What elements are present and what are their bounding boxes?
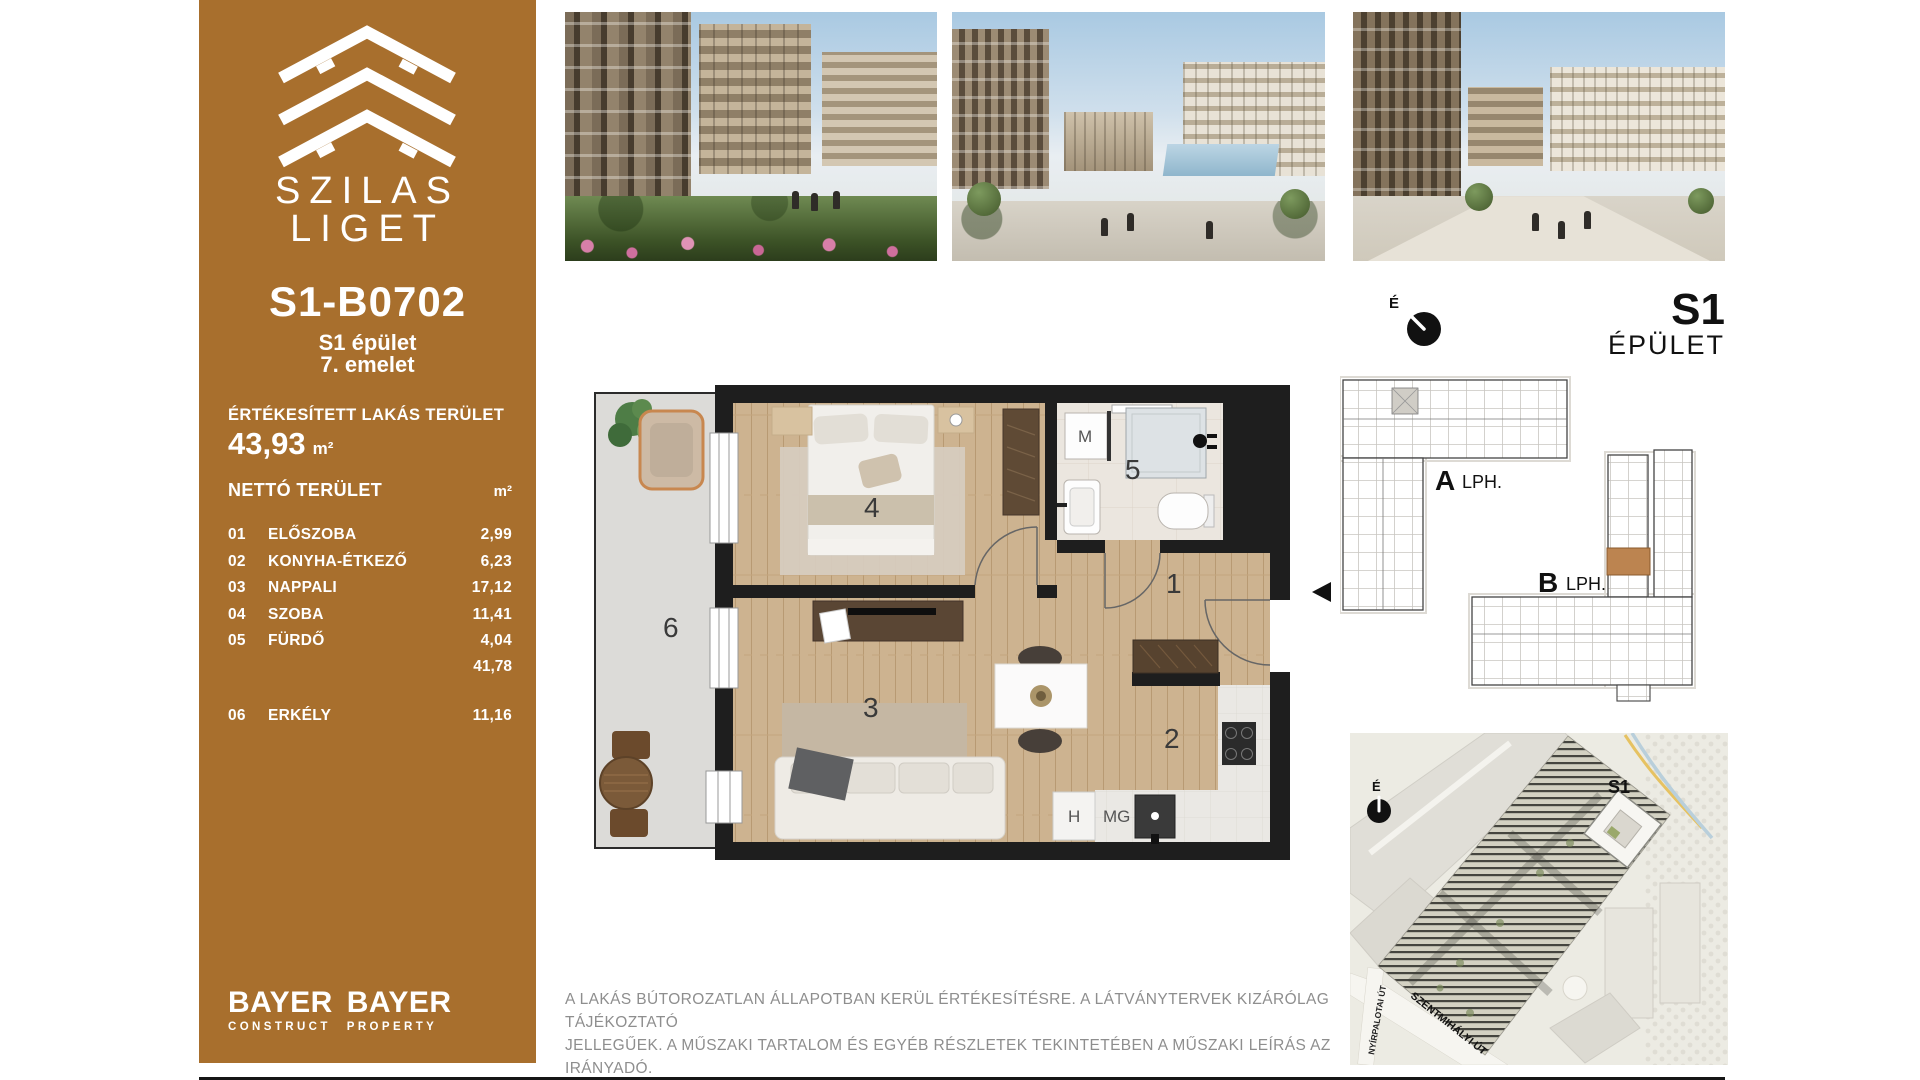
building-left [952,29,1049,188]
fridge-label: H [1068,807,1080,826]
washing-machine-label: M [1078,427,1092,446]
compass-north-label: É [1389,295,1399,312]
person-figure [1558,221,1565,239]
bayer-property-logo: BAYER PROPERTY [347,988,452,1033]
net-area-label: NETTÓ TERÜLET [228,480,382,501]
toilet [1158,493,1214,529]
room-number-bathroom: 5 [1125,454,1141,485]
room-name: ELŐSZOBA [268,526,481,544]
room-number-kitchen: 2 [1164,723,1180,754]
room-row: 03 NAPPALI 17,12 [228,575,512,602]
brochure-page: SZILAS LIGET S1-B0702 S1 épület 7. emele… [0,0,1920,1080]
room-name: FÜRDŐ [268,632,481,650]
bayer-construct-logo: BAYER CONSTRUCT [228,988,333,1033]
developer-logos: BAYER CONSTRUCT BAYER PROPERTY [228,988,452,1033]
person-figure [792,191,799,209]
room-number-bedroom: 4 [864,492,880,523]
building-right [1550,67,1725,172]
tree [1280,189,1310,219]
logo-name: BAYER [228,988,333,1018]
room-name: KONYHA-ÉTKEZŐ [268,553,481,571]
brand-line-2: LIGET [199,208,536,251]
cooktop [1222,722,1256,765]
building-far [1064,112,1154,172]
plaza [952,201,1325,261]
person-figure [1127,213,1134,231]
deco-book [820,609,851,643]
sofa [775,747,1005,839]
logo-sub: CONSTRUCT [228,1021,333,1033]
person-figure [1532,213,1539,231]
balcony-row: 06 ERKÉLY 11,16 [228,703,512,730]
kitchen-wardrobe [1133,640,1218,673]
room-number-living: 3 [863,692,879,723]
room-no: 02 [228,553,268,571]
disclaimer-line-2: JELLEGŰEK. A MŰSZAKI TARTALOM ÉS EGYÉB R… [565,1034,1365,1080]
room-number-hall: 1 [1166,568,1182,599]
person-figure [1584,211,1591,229]
room-area: 2,99 [481,526,512,544]
building-title: S1 [1560,290,1725,330]
room-name: ERKÉLY [268,707,473,725]
render-photo-3 [1353,12,1725,261]
room-area: 4,04 [481,632,512,650]
brand-line-1: SZILAS [199,170,536,213]
render-photo-1 [565,12,937,261]
room-no: 05 [228,632,268,650]
disclaimer-line-1: A LAKÁS BÚTOROZATLAN ÁLLAPOTBAN KERÜL ÉR… [565,988,1365,1034]
sidebar: SZILAS LIGET S1-B0702 S1 épület 7. emele… [199,0,536,1063]
sold-area-label: ÉRTÉKESÍTETT LAKÁS TERÜLET [228,406,504,425]
building-left [1353,12,1461,211]
net-area-header: NETTÓ TERÜLET m² [228,480,512,501]
sold-area-value: 43,93 [228,426,306,462]
room-row: 02 KONYHA-ÉTKEZŐ 6,23 [228,549,512,576]
logo-name: BAYER [347,988,452,1018]
room-area: 17,12 [472,579,512,597]
apartment-floorplan: 1 2 3 4 5 6 M H MG [560,375,1350,880]
person-figure [1101,218,1108,236]
glass-pavilion [1162,144,1278,176]
room-number-balcony: 6 [663,612,679,643]
balcony-armchair [640,411,703,489]
tree [1465,183,1493,211]
room-row: 05 FÜRDŐ 4,04 [228,628,512,655]
room-no: 06 [228,707,268,725]
map-s1-label: S1 [1608,777,1630,797]
person-figure [1206,221,1213,239]
net-area-unit: m² [494,483,512,500]
net-total: 41,78 [228,658,512,676]
nightstand-left [772,407,812,435]
logo-sub: PROPERTY [347,1021,452,1033]
building-title-block: S1 ÉPÜLET [1560,290,1725,360]
person-figure [833,191,840,209]
room-no: 01 [228,526,268,544]
floor-name: 7. emelet [199,352,536,378]
unit-id: S1-B0702 [199,278,536,326]
room-name: SZOBA [268,606,473,624]
room-name: NAPPALI [268,579,472,597]
szilas-liget-logo-icon [267,16,467,168]
stair-a-label: LPH. [1462,472,1502,492]
map-compass-label: É [1372,779,1381,794]
floor-keyplan: A LPH. B LPH. [1340,372,1735,707]
bedroom-wardrobe [1003,409,1039,515]
nightstand-deco [950,414,962,426]
building-far [1468,87,1542,167]
render-photo-2 [952,12,1325,261]
room-area: 11,16 [473,707,512,725]
stair-b-label: LPH. [1566,574,1606,594]
flower-bed [565,234,937,261]
disclaimer: A LAKÁS BÚTOROZATLAN ÁLLAPOTBAN KERÜL ÉR… [565,988,1365,1080]
sold-area-unit: m² [313,439,334,459]
stair-b-letter: B [1538,567,1558,598]
dishwasher-label: MG [1103,807,1130,826]
building-mid [699,24,811,173]
tree [1688,188,1714,214]
entrance-arrow-icon [1312,582,1331,602]
keyplan-compass: É [1385,292,1455,362]
building-subtitle: ÉPÜLET [1560,330,1725,360]
building-right [822,52,937,167]
room-area: 6,23 [481,553,512,571]
highlighted-unit [1607,548,1650,575]
room-row: 04 SZOBA 11,41 [228,602,512,629]
room-area: 11,41 [473,606,512,624]
room-no: 04 [228,606,268,624]
bed [808,405,934,555]
kitchen-sink [1135,795,1175,844]
stair-a-letter: A [1435,465,1455,496]
site-map: S1 É NYÍRPALOTAI ÚT SZENTMIHÁLYI ÚT [1350,733,1728,1065]
room-row: 01 ELŐSZOBA 2,99 [228,522,512,549]
sold-area-value-row: 43,93 m² [228,426,333,462]
tree [967,182,1001,216]
keyplan-labels: A LPH. B LPH. [1435,465,1606,598]
person-figure [811,193,818,211]
building-facade [565,12,691,201]
room-no: 03 [228,579,268,597]
